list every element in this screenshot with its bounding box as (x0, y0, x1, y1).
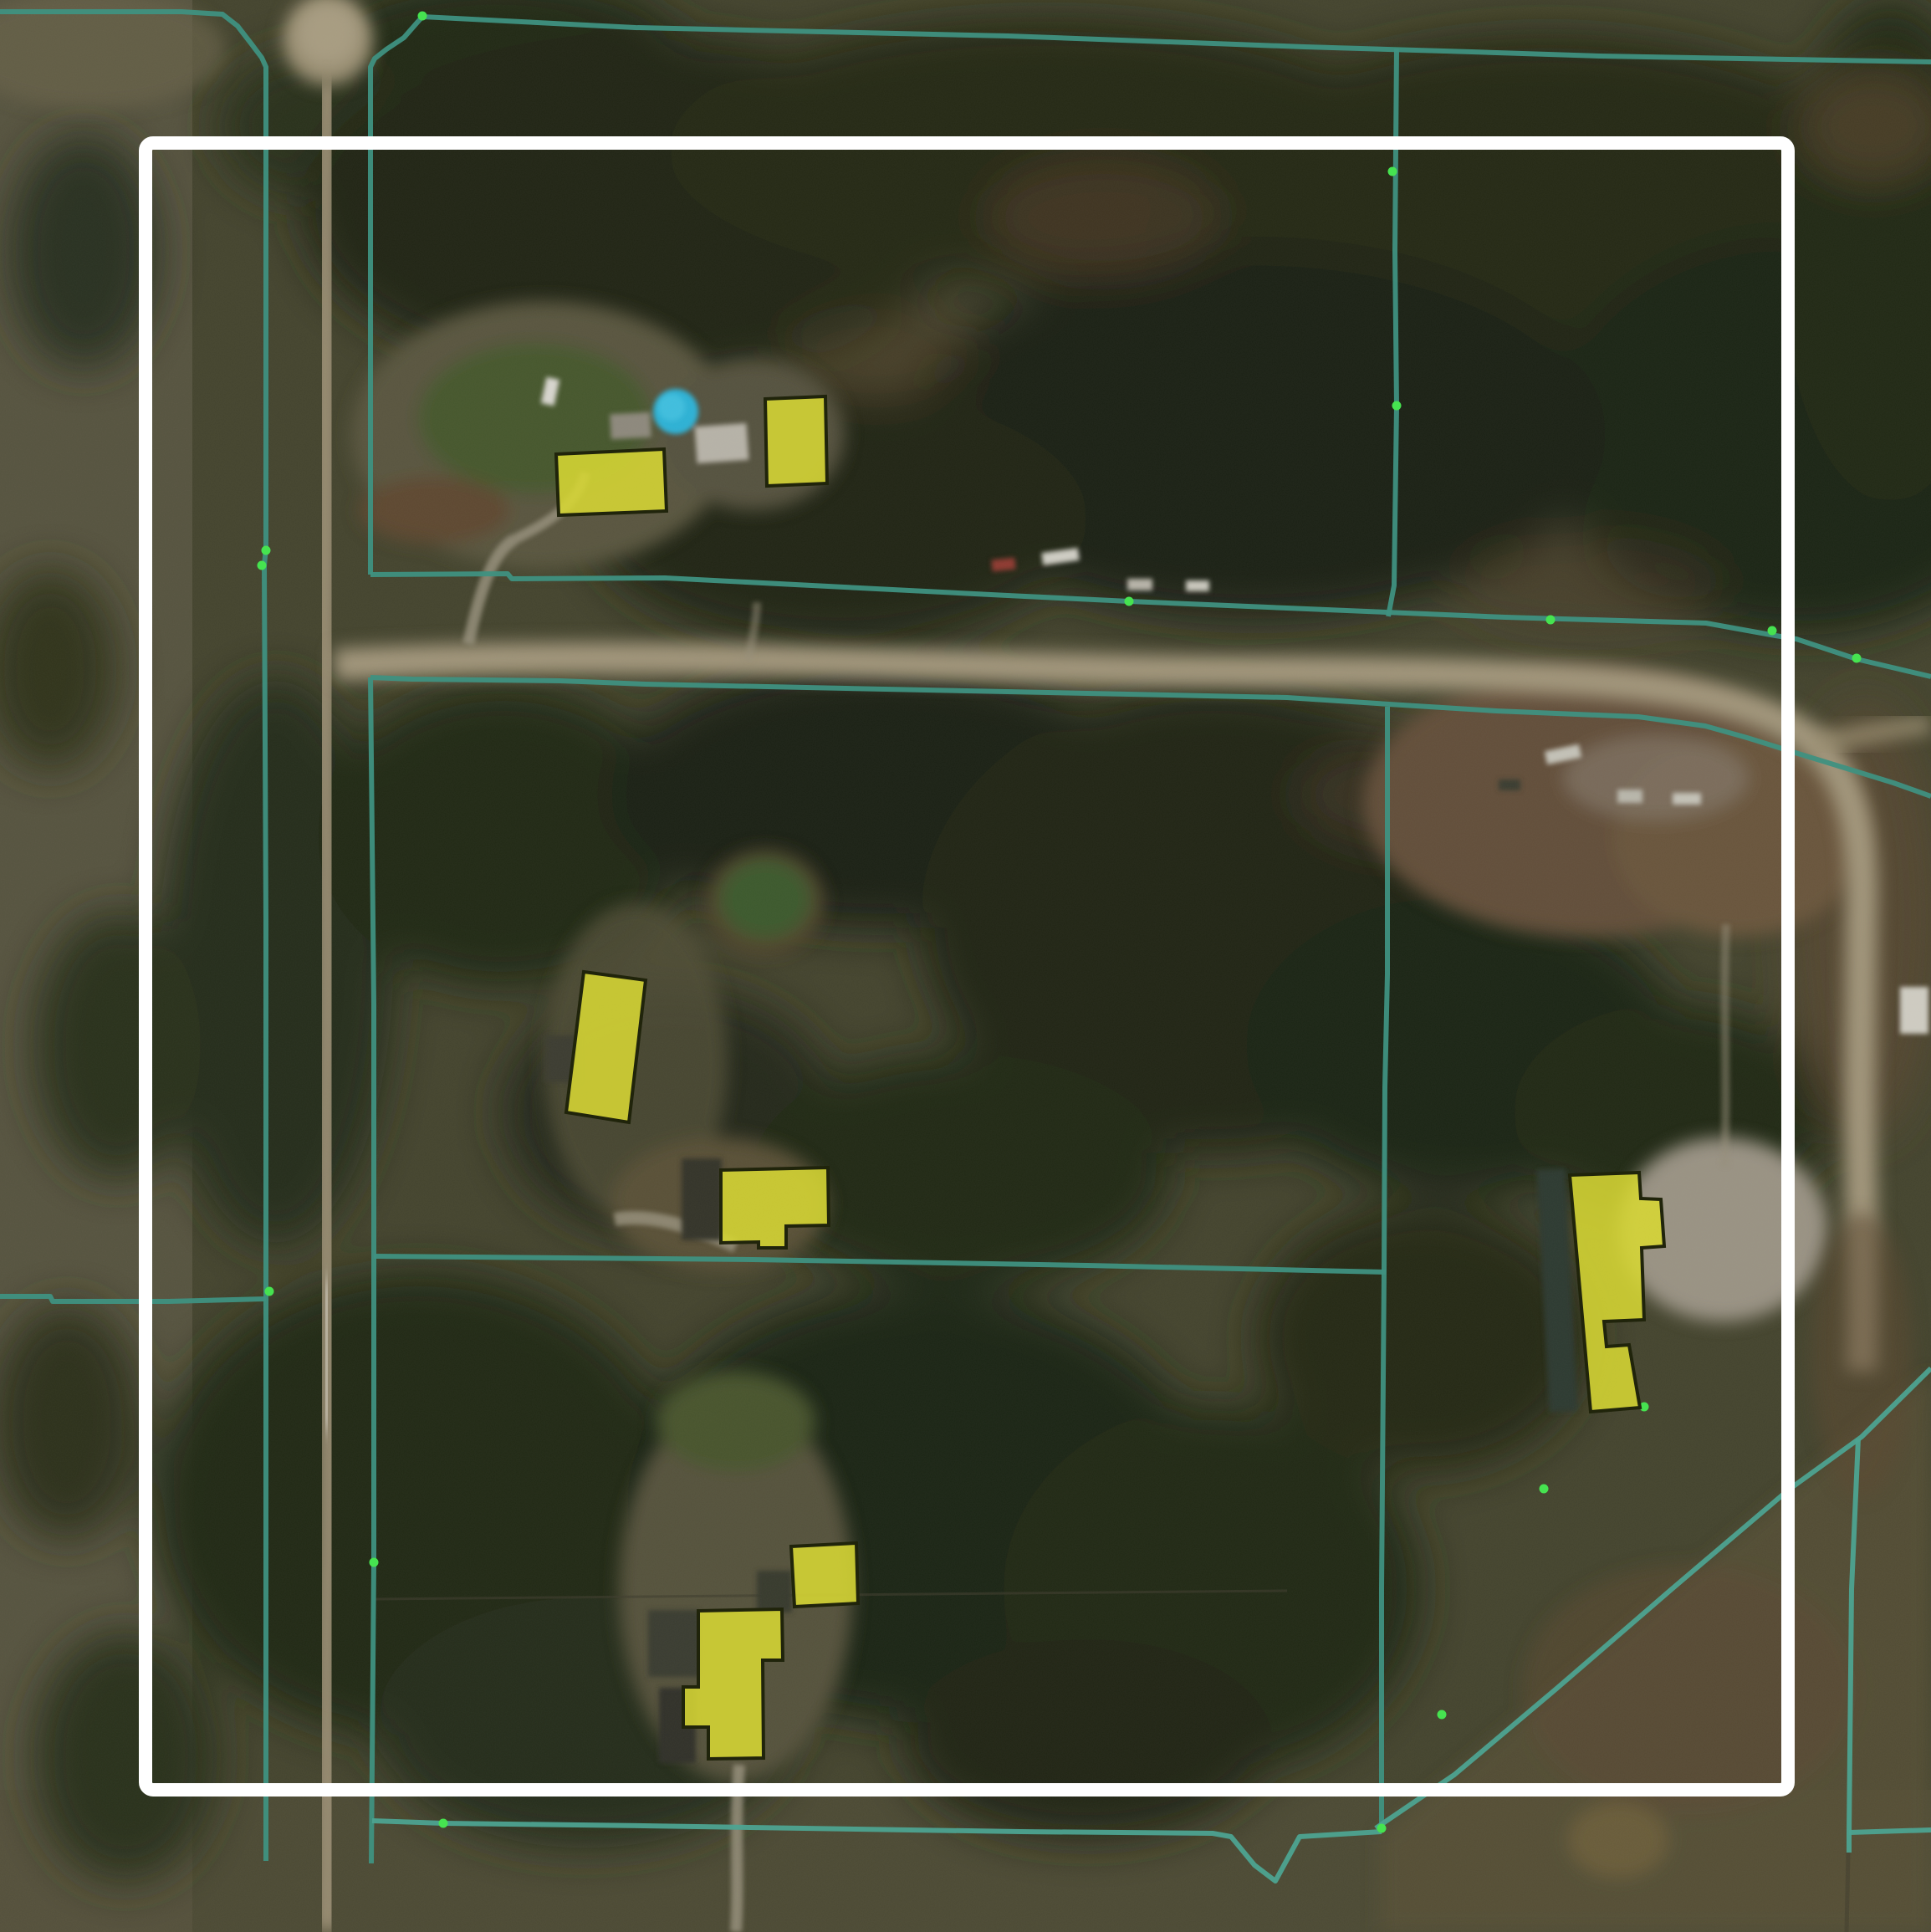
annotation-overlay (0, 0, 1931, 1932)
building-e2-footprint[interactable] (791, 1543, 858, 1607)
parcel-boundary-line (370, 574, 1931, 677)
building-d-footprint[interactable] (1570, 1173, 1664, 1412)
parcel-boundary-line (370, 677, 1931, 796)
parcel-boundary-line (372, 1821, 1382, 1881)
building-a1-footprint[interactable] (556, 449, 667, 515)
parcel-boundary-line (0, 12, 266, 1861)
parcel-boundary-line (374, 1256, 1386, 1272)
building-c-footprint[interactable] (721, 1168, 829, 1248)
building-e1-footprint[interactable] (683, 1609, 783, 1759)
parcel-vertex-dot (1438, 1710, 1447, 1720)
parcel-boundary-line (1849, 1830, 1931, 1832)
selection-extent-box (146, 143, 1788, 1790)
parcel-vertex-dot (258, 561, 267, 570)
parcel-vertex-dot (1125, 597, 1134, 606)
parcel-vertex-dot (1546, 616, 1556, 625)
parcel-vertex-dot (265, 1287, 274, 1296)
parcel-vertex-dot (439, 1819, 448, 1828)
parcel-boundary-line (0, 1296, 266, 1301)
parcel-vertex-dot (262, 546, 271, 555)
parcel-boundary-line (1849, 1439, 1858, 1853)
parcel-vertex-dot (418, 12, 427, 21)
parcel-vertex-dot (370, 1558, 379, 1567)
parcel-vertex-dot (1388, 167, 1397, 176)
building-a2-footprint[interactable] (765, 396, 827, 486)
parcel-vertex-dot (1392, 401, 1402, 411)
parcel-boundary-line (1388, 49, 1397, 616)
parcel-vertex-dot (1768, 626, 1777, 636)
parcel-boundary-line (370, 677, 374, 1863)
parcel-vertex-dot (1377, 1824, 1387, 1833)
building-b-footprint[interactable] (566, 972, 646, 1122)
map-canvas[interactable] (0, 0, 1931, 1932)
parcel-vertex-dot (1540, 1485, 1549, 1494)
parcel-vertex-dot (1852, 654, 1862, 663)
parcel-boundary-line (1382, 707, 1387, 1830)
